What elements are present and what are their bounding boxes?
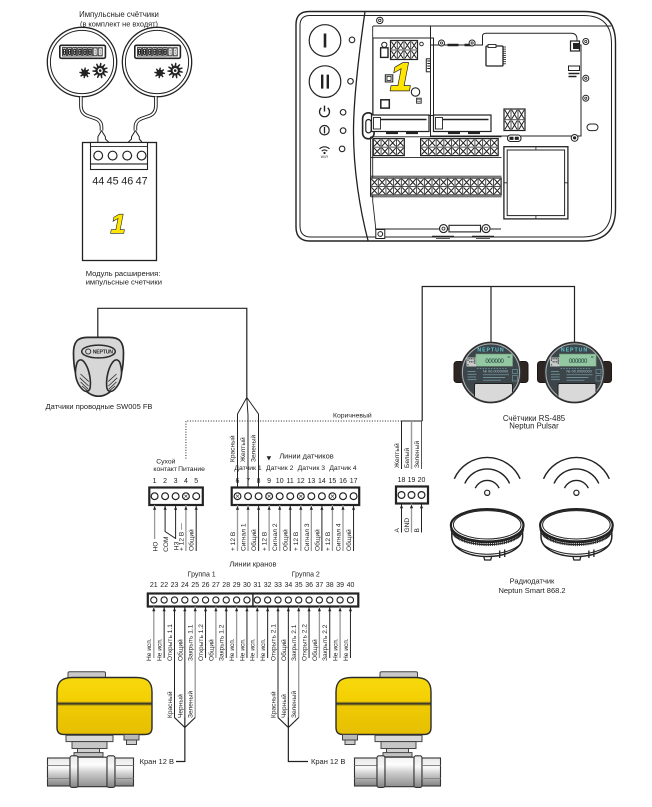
svg-text:Общий: Общий	[188, 529, 196, 551]
svg-text:Кран 12 В: Кран 12 В	[140, 757, 174, 766]
svg-text:Не исп.: Не исп.	[229, 638, 236, 661]
svg-text:Радиодатчик: Радиодатчик	[510, 577, 555, 586]
svg-text:21: 21	[150, 582, 158, 589]
svg-text:№ 00.0000000: № 00.0000000	[567, 370, 592, 374]
svg-text:34: 34	[285, 582, 293, 589]
svg-text:Neptun Pulsar: Neptun Pulsar	[509, 422, 559, 431]
svg-text:Датчик 1: Датчик 1	[234, 465, 262, 472]
svg-text:Линии датчиков: Линии датчиков	[279, 452, 333, 461]
svg-text:Группа 2: Группа 2	[292, 572, 320, 579]
svg-text:17: 17	[350, 478, 358, 485]
svg-text:Черный: Черный	[280, 694, 288, 718]
svg-text:Не исп.: Не исп.	[157, 638, 164, 661]
svg-text:14: 14	[318, 478, 326, 485]
svg-text:12: 12	[297, 478, 305, 485]
svg-text:Закрыть 1.2: Закрыть 1.2	[219, 624, 226, 661]
svg-text:30: 30	[243, 582, 251, 589]
svg-text:NEPTUN: NEPTUN	[93, 350, 114, 356]
svg-text:44: 44	[92, 176, 104, 188]
svg-text:Красный: Красный	[269, 691, 277, 718]
svg-text:28: 28	[222, 582, 230, 589]
svg-text:Не исп.: Не исп.	[343, 638, 350, 661]
svg-text:18: 18	[398, 477, 406, 484]
svg-text:4: 4	[184, 478, 188, 485]
svg-text:Сигнал 2: Сигнал 2	[272, 523, 279, 551]
svg-text:+ 12 В: + 12 В	[230, 531, 237, 551]
svg-text:контакт: контакт	[153, 466, 177, 473]
svg-text:Датчик 3: Датчик 3	[298, 465, 326, 472]
svg-text:36: 36	[305, 582, 313, 589]
svg-text:Wi-Fi: Wi-Fi	[321, 155, 329, 159]
svg-text:9: 9	[267, 478, 271, 485]
svg-text:Зеленый: Зеленый	[250, 435, 258, 462]
svg-text:НО: НО	[152, 542, 159, 552]
svg-text:Общий: Общий	[176, 639, 184, 661]
svg-text:Датчик 4: Датчик 4	[329, 465, 357, 472]
svg-text:13: 13	[308, 478, 316, 485]
svg-text:NEPTUN: NEPTUN	[561, 348, 588, 354]
svg-text:Датчики проводные SW005 FB: Датчики проводные SW005 FB	[46, 402, 153, 411]
svg-text:Закрыть 2.2: Закрыть 2.2	[322, 624, 329, 661]
svg-text:Общий: Общий	[345, 529, 353, 551]
svg-text:COM: COM	[163, 537, 170, 552]
svg-text:Открыть 2.2: Открыть 2.2	[301, 624, 308, 661]
svg-text:(в комплект не входят): (в комплект не входят)	[80, 20, 158, 29]
svg-text:NEPTUN: NEPTUN	[477, 348, 504, 354]
svg-text:GND: GND	[404, 518, 411, 533]
svg-text:Общий: Общий	[207, 639, 215, 661]
svg-text:+ 12 В: + 12 В	[293, 531, 300, 551]
svg-text:1: 1	[153, 478, 157, 485]
svg-text:Сигнал 3: Сигнал 3	[304, 523, 311, 551]
svg-text:27: 27	[212, 582, 220, 589]
svg-text:47: 47	[136, 176, 148, 188]
svg-text:15: 15	[329, 478, 337, 485]
svg-text:Общий: Общий	[313, 529, 321, 551]
svg-text:40: 40	[347, 582, 355, 589]
svg-text:Сигнал 1: Сигнал 1	[240, 523, 247, 551]
svg-text:Датчик 2: Датчик 2	[266, 465, 294, 472]
svg-text:Черный: Черный	[176, 694, 184, 718]
svg-text:Закрыть 2.1: Закрыть 2.1	[291, 624, 298, 661]
svg-text:1: 1	[110, 209, 125, 239]
svg-text:31: 31	[253, 582, 261, 589]
svg-text:Импульсные счётчики: Импульсные счётчики	[79, 10, 159, 19]
svg-text:Общий: Общий	[311, 639, 319, 661]
svg-text:А: А	[394, 528, 401, 533]
svg-text:39: 39	[336, 582, 344, 589]
svg-text:+ 12 В —: + 12 В —	[178, 523, 185, 551]
svg-text:22: 22	[160, 582, 168, 589]
svg-text:Коричневый: Коричневый	[333, 412, 372, 420]
svg-text:45: 45	[107, 176, 119, 188]
svg-text:Не исп.: Не исп.	[260, 638, 267, 661]
svg-text:Желтый: Желтый	[393, 443, 401, 468]
svg-text:Питание: Питание	[178, 466, 205, 473]
svg-text:Не исп.: Не исп.	[333, 638, 340, 661]
svg-text:5: 5	[194, 478, 198, 485]
svg-text:Зеленый: Зеленый	[187, 691, 195, 718]
svg-text:Neptun Smart 868.2: Neptun Smart 868.2	[498, 586, 565, 595]
svg-text:26: 26	[202, 582, 210, 589]
svg-text:Открыть 1.1: Открыть 1.1	[167, 624, 174, 661]
svg-text:Сигнал 4: Сигнал 4	[335, 523, 342, 551]
svg-text:Закрыть 1.1: Закрыть 1.1	[188, 624, 195, 661]
svg-text:Не исп.: Не исп.	[239, 638, 246, 661]
svg-text:10: 10	[276, 478, 284, 485]
svg-text:Зеленый: Зеленый	[290, 691, 298, 718]
svg-text:Кран 12 В: Кран 12 В	[311, 757, 345, 766]
svg-text:000000: 000000	[569, 359, 588, 365]
svg-text:000000: 000000	[485, 359, 504, 365]
svg-text:Группа 1: Группа 1	[188, 572, 216, 579]
svg-text:Не исп.: Не исп.	[250, 638, 257, 661]
svg-text:Общий: Общий	[282, 529, 290, 551]
svg-text:Красный: Красный	[166, 691, 174, 718]
svg-text:+ 12 В: + 12 В	[325, 531, 332, 551]
svg-text:Общий: Общий	[250, 529, 258, 551]
svg-text:8: 8	[257, 478, 261, 485]
svg-text:Общий: Общий	[280, 639, 288, 661]
svg-text:19: 19	[408, 477, 416, 484]
svg-text:7: 7	[246, 478, 250, 485]
svg-text:33: 33	[274, 582, 282, 589]
svg-text:Линии кранов: Линии кранов	[229, 560, 276, 569]
svg-text:24: 24	[181, 582, 189, 589]
svg-text:Белый: Белый	[403, 448, 411, 468]
svg-text:Открыть 2.1: Открыть 2.1	[270, 624, 277, 661]
svg-text:29: 29	[233, 582, 241, 589]
svg-text:23: 23	[171, 582, 179, 589]
svg-text:Красный: Красный	[229, 435, 237, 462]
svg-text:Желтый: Желтый	[239, 437, 247, 462]
svg-text:№ 00.0000000: № 00.0000000	[483, 370, 508, 374]
svg-text:+ 12 В: + 12 В	[262, 531, 269, 551]
svg-text:16: 16	[339, 478, 347, 485]
svg-text:25: 25	[191, 582, 199, 589]
svg-text:Сухой: Сухой	[156, 458, 175, 466]
svg-text:20: 20	[418, 477, 426, 484]
svg-text:Зеленый: Зеленый	[413, 441, 421, 468]
svg-text:импульсные счетчики: импульсные счетчики	[86, 278, 162, 287]
svg-text:11: 11	[287, 478, 294, 485]
svg-text:37: 37	[316, 582, 324, 589]
svg-text:Открыть 1.2: Открыть 1.2	[198, 624, 205, 661]
svg-text:32: 32	[264, 582, 272, 589]
svg-text:38: 38	[326, 582, 334, 589]
svg-text:Не исп.: Не исп.	[146, 638, 153, 661]
svg-text:35: 35	[295, 582, 303, 589]
svg-text:46: 46	[121, 176, 133, 188]
svg-text:6: 6	[236, 478, 240, 485]
svg-text:3: 3	[174, 478, 178, 485]
svg-text:В: В	[414, 528, 421, 533]
svg-text:2: 2	[163, 478, 167, 485]
